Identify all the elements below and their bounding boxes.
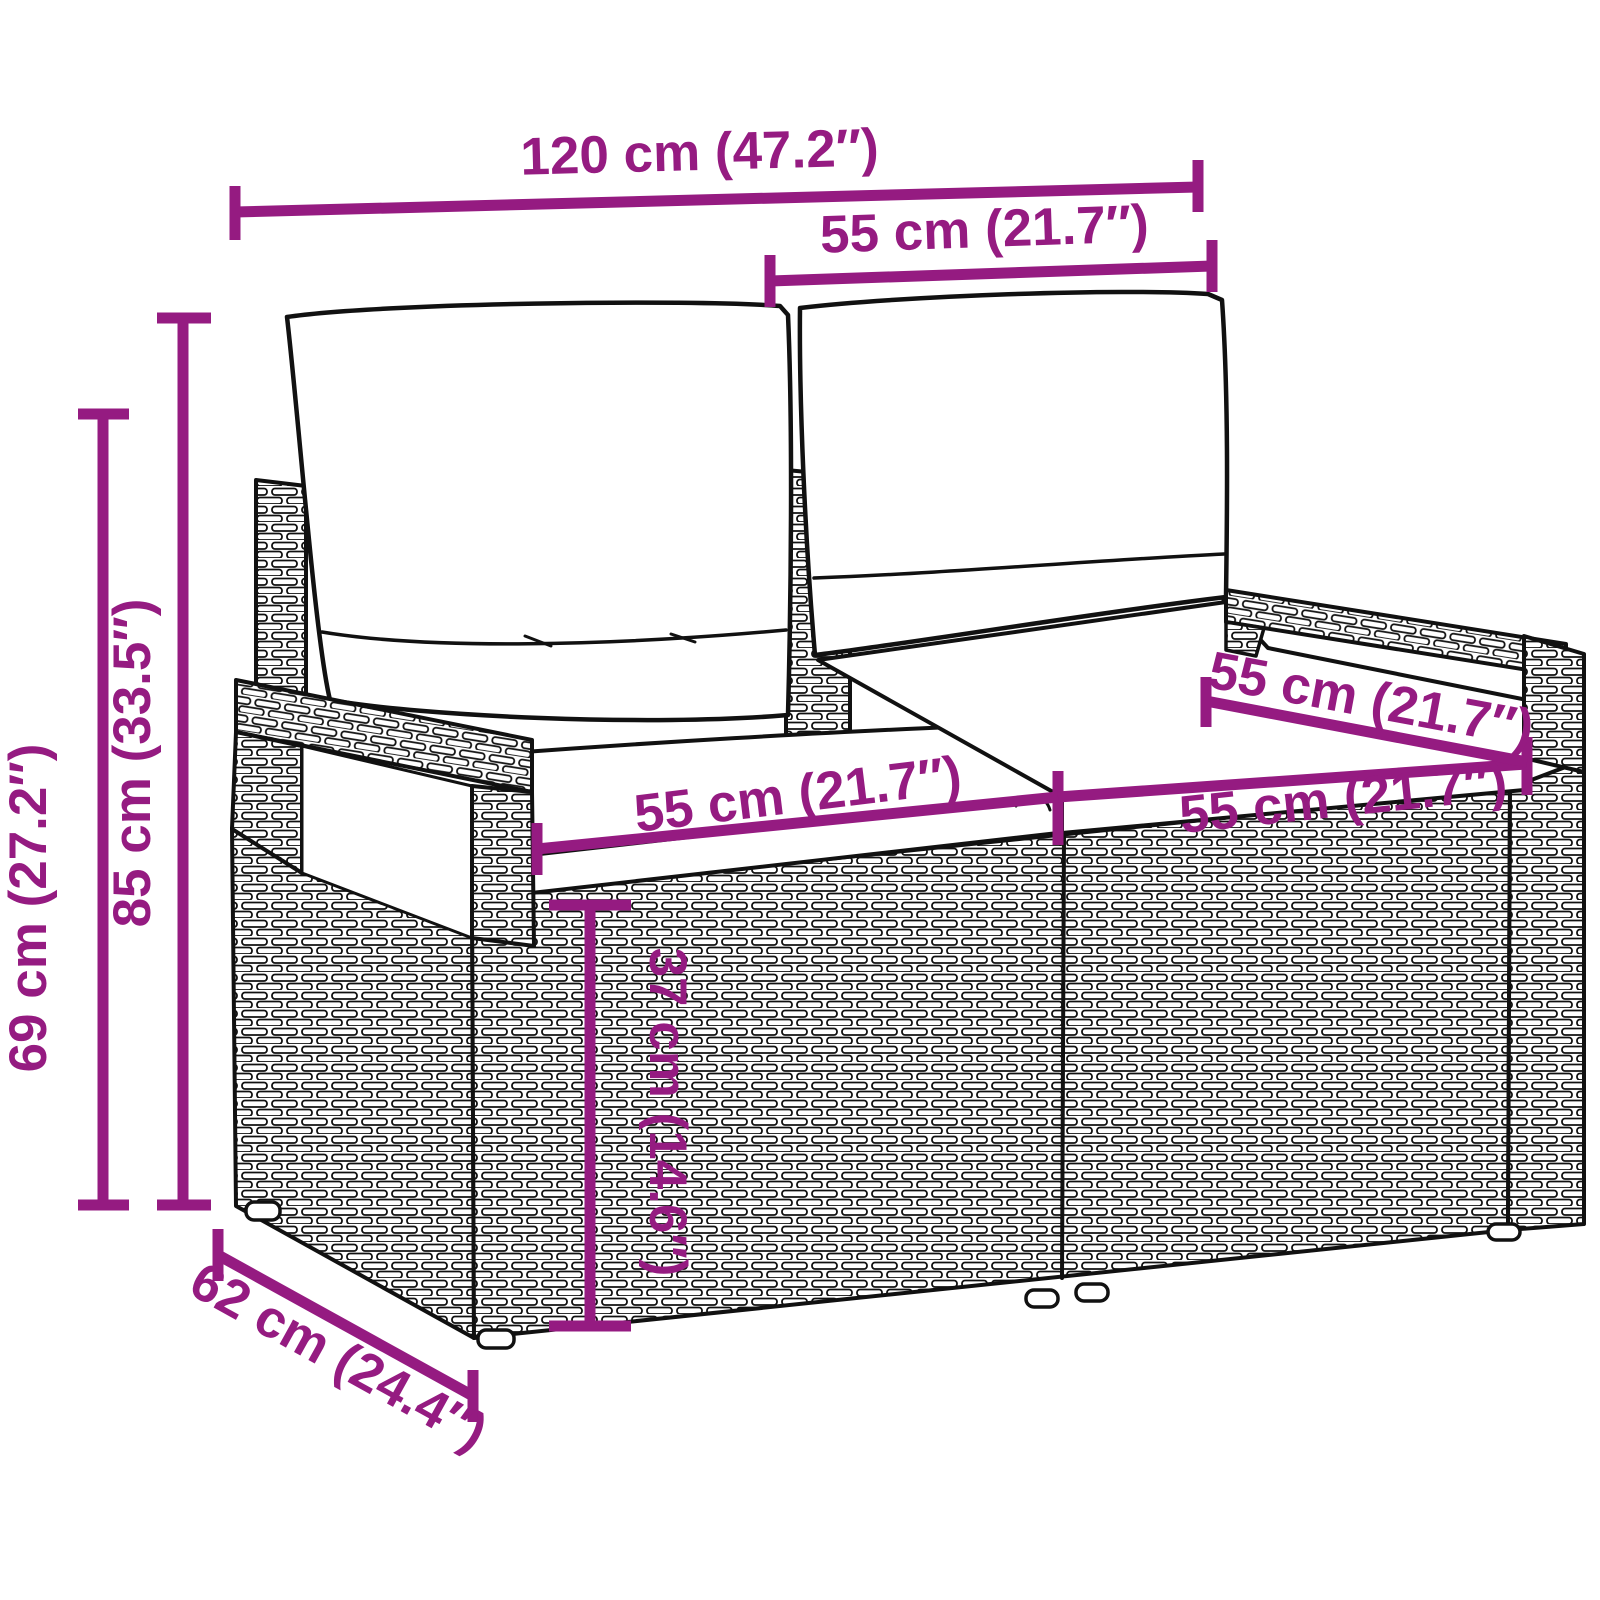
dim-label-frame-height: 69 cm (27.2″) xyxy=(0,744,58,1073)
armrest-left-front-post xyxy=(472,786,534,946)
dim-overall-height xyxy=(157,318,211,1205)
dim-label-overall-width: 120 cm (47.2″) xyxy=(520,118,880,186)
back-post-left xyxy=(256,480,306,706)
dimension-diagram: 120 cm (47.2″) 55 cm (21.7″) 85 cm (33.5… xyxy=(0,0,1600,1600)
dim-label-overall-height: 85 cm (33.5″) xyxy=(103,599,162,928)
dim-label-back-section-width: 55 cm (21.7″) xyxy=(819,194,1150,264)
dim-label-seat-height: 37 cm (14.6″) xyxy=(638,948,697,1277)
back-cushion-right xyxy=(800,292,1227,655)
diagram-canvas: 120 cm (47.2″) 55 cm (21.7″) 85 cm (33.5… xyxy=(0,0,1600,1600)
base-module-seam xyxy=(1062,834,1064,1278)
base-right-side xyxy=(1508,760,1584,1230)
